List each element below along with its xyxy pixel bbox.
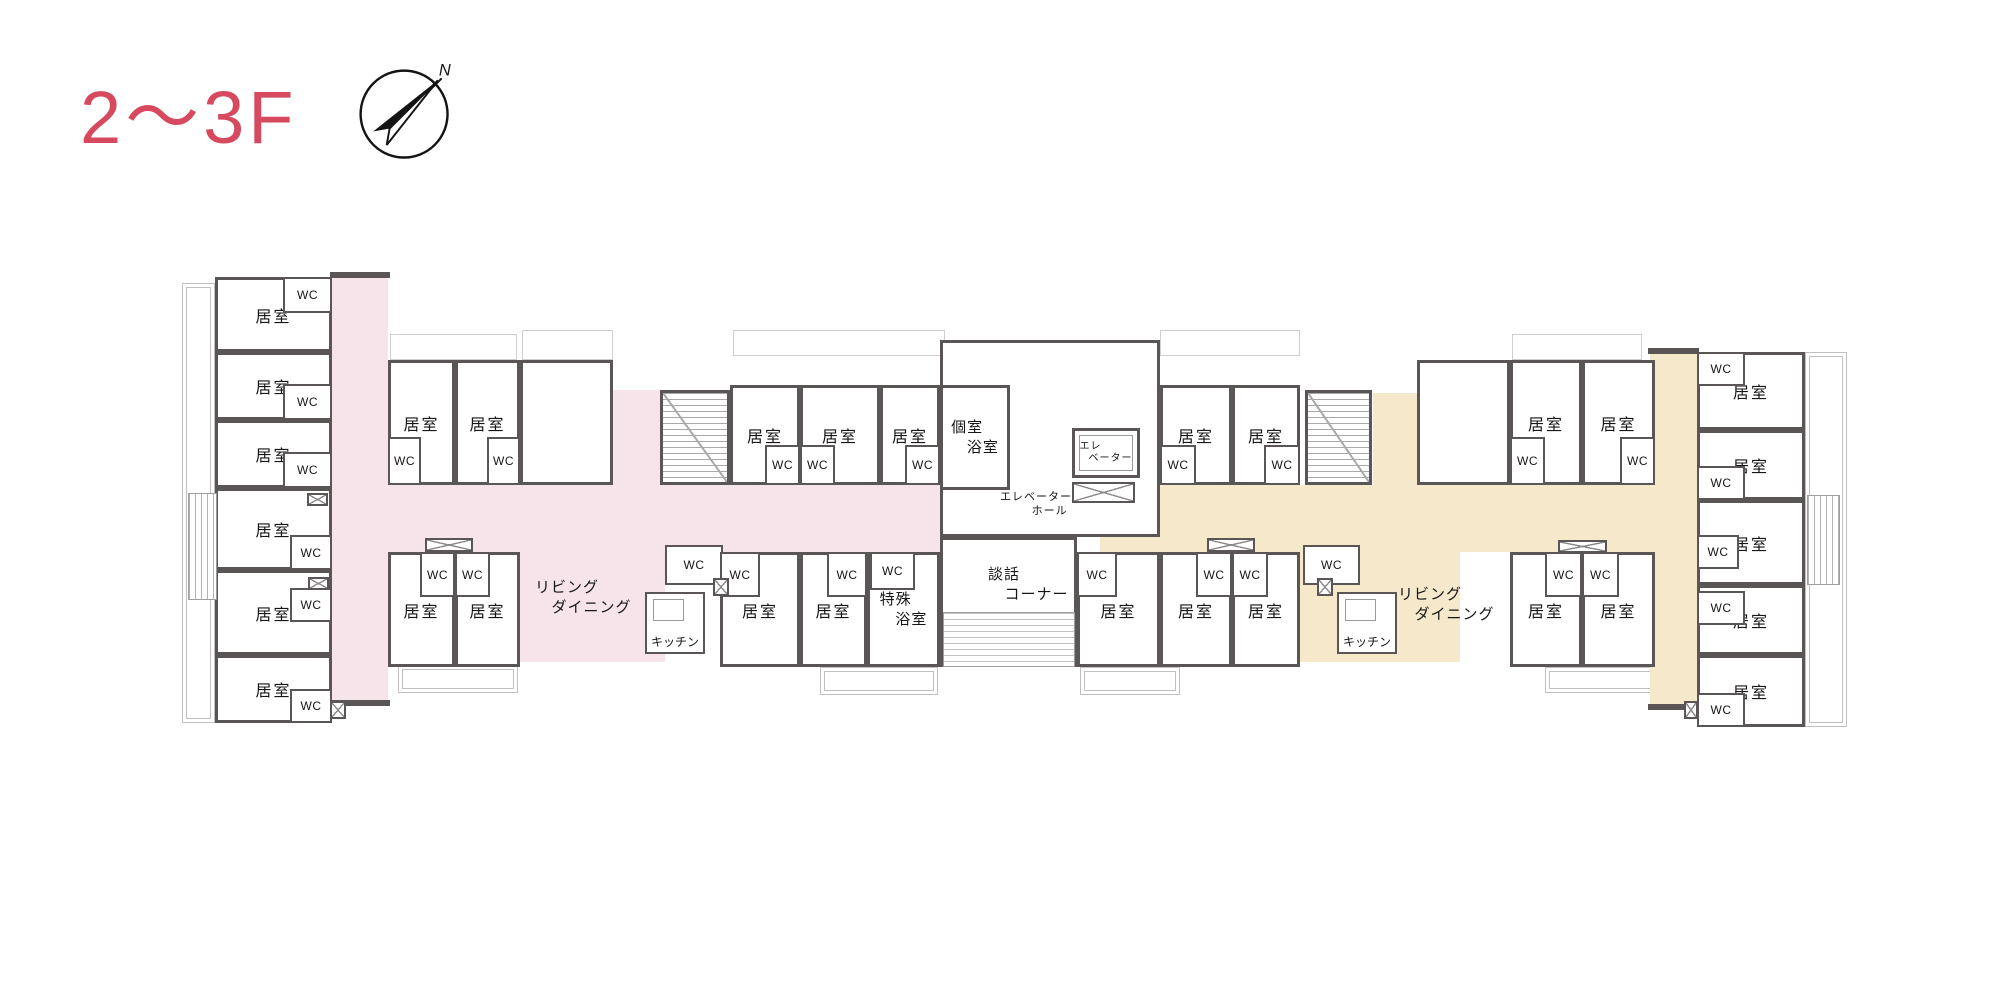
wc-closet: WC: [1196, 552, 1232, 597]
exterior-notch: [390, 334, 517, 360]
wc-label: WC: [1711, 601, 1732, 615]
wc-closet: WC: [1582, 552, 1619, 597]
wc-label: WC: [1321, 558, 1342, 572]
wc-closet: WC: [905, 445, 940, 485]
wc-closet: WC: [1510, 437, 1545, 485]
wc-closet: WC: [290, 689, 332, 723]
room-label: 居室: [403, 598, 439, 622]
wc-label: WC: [1711, 476, 1732, 490]
wc-label: WC: [1240, 568, 1261, 582]
balcony-deck: [398, 665, 518, 693]
area-label-line: ホール: [972, 504, 1068, 518]
wc-label: WC: [1087, 568, 1108, 582]
wc-closet: WC: [290, 588, 332, 622]
kitchen-sink-icon: [653, 599, 684, 621]
wc-closet: WC: [1697, 352, 1745, 386]
bath-room: 個室浴室: [940, 385, 1010, 490]
utility-room: [1417, 360, 1510, 485]
exterior-notch: [733, 330, 945, 356]
shaft-crossed-box: [308, 577, 329, 590]
wc-closet: WC: [765, 445, 800, 485]
wc-label: WC: [1711, 362, 1732, 376]
balcony-deck: [1080, 667, 1180, 695]
area-label-line: ダイニング: [1415, 605, 1495, 625]
wc-label: WC: [297, 395, 318, 409]
wc-label: WC: [837, 568, 858, 582]
room-label-line: 浴室: [895, 610, 927, 630]
wc-label: WC: [427, 568, 448, 582]
room-label: 居室: [1528, 411, 1564, 435]
balcony-deck: [820, 667, 938, 695]
wc-label: WC: [1711, 703, 1732, 717]
shaft-crossed-box: [1684, 701, 1698, 719]
room-label: 居室: [1528, 598, 1564, 622]
wc-closet: WC: [1697, 693, 1745, 727]
wall-segment: [330, 272, 390, 278]
wc-label: WC: [807, 458, 828, 472]
kitchen-sink-icon: [1345, 599, 1376, 621]
stairwell: [660, 390, 730, 485]
wc-label: WC: [684, 558, 705, 572]
room-label: 居室: [1248, 598, 1284, 622]
wc-label: WC: [912, 458, 933, 472]
wc-closet: WC: [455, 552, 490, 597]
wc-closet: WC: [1545, 552, 1582, 597]
room-label: 居室: [892, 423, 928, 447]
wc-label: WC: [301, 546, 322, 560]
room-label: 居室: [255, 517, 291, 541]
wall-segment: [1648, 348, 1699, 354]
wc-closet: WC: [388, 437, 421, 485]
engawa-deck-hatch: [943, 612, 1075, 667]
stairwell: [1305, 390, 1372, 485]
corridor-pink: [613, 390, 660, 490]
wc-label: WC: [1272, 458, 1293, 472]
wc-closet: WC: [1160, 445, 1196, 485]
wc-label: WC: [1590, 568, 1611, 582]
area-label-line: ダイニング: [552, 598, 632, 618]
area-label: リビングダイニング: [1398, 585, 1495, 624]
area-label: エレベーターホール: [972, 490, 1072, 519]
room-label-line: 個室: [951, 418, 999, 438]
wc-label: WC: [1168, 458, 1189, 472]
wc-closet: WC: [1697, 591, 1745, 625]
wc-closet: WC: [1232, 552, 1268, 597]
wc-label: WC: [301, 598, 322, 612]
area-label-line: コーナー: [1005, 585, 1069, 605]
room-label: 居室: [822, 423, 858, 447]
area-label-line: 談話: [988, 565, 1069, 585]
exterior-notch: [522, 330, 613, 360]
area-label-line: リビング: [535, 578, 632, 598]
wc-label: WC: [301, 699, 322, 713]
wc-label: WC: [1627, 454, 1648, 468]
wc-closet: WC: [1697, 466, 1745, 500]
wc-label: WC: [493, 454, 514, 468]
room-label: 居室: [469, 411, 505, 435]
wc-label: WC: [1553, 568, 1574, 582]
wc-closet: WC: [827, 552, 867, 597]
wc-label: WC: [882, 564, 903, 578]
elevator-car: エレベーター: [1079, 435, 1133, 471]
room-label: 個室浴室: [951, 418, 999, 457]
room-label-line: 特殊: [880, 590, 928, 610]
kitchen-label: キッチン: [647, 633, 703, 650]
wc-label: WC: [297, 288, 318, 302]
room-label: 居室: [1178, 598, 1214, 622]
area-label: 談話コーナー: [988, 565, 1069, 604]
exterior-notch: [1512, 334, 1642, 360]
room-label-line: 浴室: [967, 438, 999, 458]
room-label: 居室: [742, 598, 778, 622]
balcony-deck: [1545, 667, 1655, 693]
wc-closet: WC: [283, 277, 332, 313]
shaft-crossed-box: [1317, 578, 1333, 596]
area-label-line: エレベーター: [972, 490, 1072, 504]
room-label: 居室: [255, 677, 291, 701]
shaft-crossed-box: [330, 701, 346, 719]
wc-closet: WC: [487, 437, 520, 485]
elevator-label-line: エレ: [1080, 441, 1133, 454]
elevator: エレベーター: [1072, 428, 1140, 478]
room-label: 居室: [403, 411, 439, 435]
wc-label: WC: [1517, 454, 1538, 468]
floorplan-canvas: 2〜3F N 居室居室居室居室居室居室居室居室居室居室居室個室浴室居室居室居室居…: [0, 0, 2000, 1000]
floorplan: 居室居室居室居室居室居室居室居室居室居室居室個室浴室居室居室居室居室特殊浴室居室…: [0, 0, 2000, 1000]
corridor-beige: [1650, 353, 1697, 710]
wc-closet: WC: [283, 452, 332, 488]
wc-label: WC: [462, 568, 483, 582]
wc-label: WC: [297, 463, 318, 477]
room-label: 居室: [1100, 598, 1136, 622]
wc-closet: WC: [420, 552, 455, 597]
wc-closet: WC: [870, 552, 915, 590]
wc-closet: WC: [283, 384, 332, 420]
shaft-crossed-box: [425, 538, 473, 552]
room-label: 居室: [1178, 423, 1214, 447]
wc-label: WC: [394, 454, 415, 468]
corridor-beige: [1373, 393, 1417, 485]
wc-closet: WC: [800, 445, 835, 485]
room-label: 特殊浴室: [880, 590, 928, 629]
utility-room: [520, 360, 613, 485]
wc-label: WC: [1204, 568, 1225, 582]
room-label: 居室: [255, 601, 291, 625]
room-label: 居室: [469, 598, 505, 622]
room-label: 居室: [747, 423, 783, 447]
exterior-stairs-hatch: [188, 493, 217, 600]
shaft-crossed-box: [307, 493, 328, 506]
wc-closet: WC: [1077, 552, 1117, 597]
area-label: リビングダイニング: [535, 578, 632, 617]
wc-closet: WC: [290, 535, 332, 570]
room-label: 居室: [815, 598, 851, 622]
exterior-stairs-hatch: [1807, 495, 1840, 585]
shaft-crossed-box: [1207, 538, 1255, 552]
elevator-label: エレベーター: [1080, 441, 1133, 466]
wc-closet: WC: [1697, 535, 1739, 569]
room-label: 居室: [1600, 598, 1636, 622]
shaft-crossed-box: [713, 578, 729, 596]
wc-closet: WC: [1264, 445, 1300, 485]
wc-closet: WC: [1620, 437, 1655, 485]
kitchen: キッチン: [645, 592, 705, 654]
kitchen-label: キッチン: [1339, 633, 1395, 650]
room-label: 居室: [1248, 423, 1284, 447]
shaft-crossed-box: [1558, 540, 1607, 553]
exterior-notch: [1160, 330, 1300, 356]
wc-label: WC: [730, 568, 751, 582]
wc-label: WC: [1708, 545, 1729, 559]
elevator-label-line: ベーター: [1089, 453, 1133, 466]
room-label: 居室: [1600, 411, 1636, 435]
kitchen: キッチン: [1337, 592, 1397, 654]
wc-label: WC: [772, 458, 793, 472]
area-label-line: リビング: [1398, 585, 1495, 605]
shaft-crossed-box: [1072, 482, 1135, 503]
